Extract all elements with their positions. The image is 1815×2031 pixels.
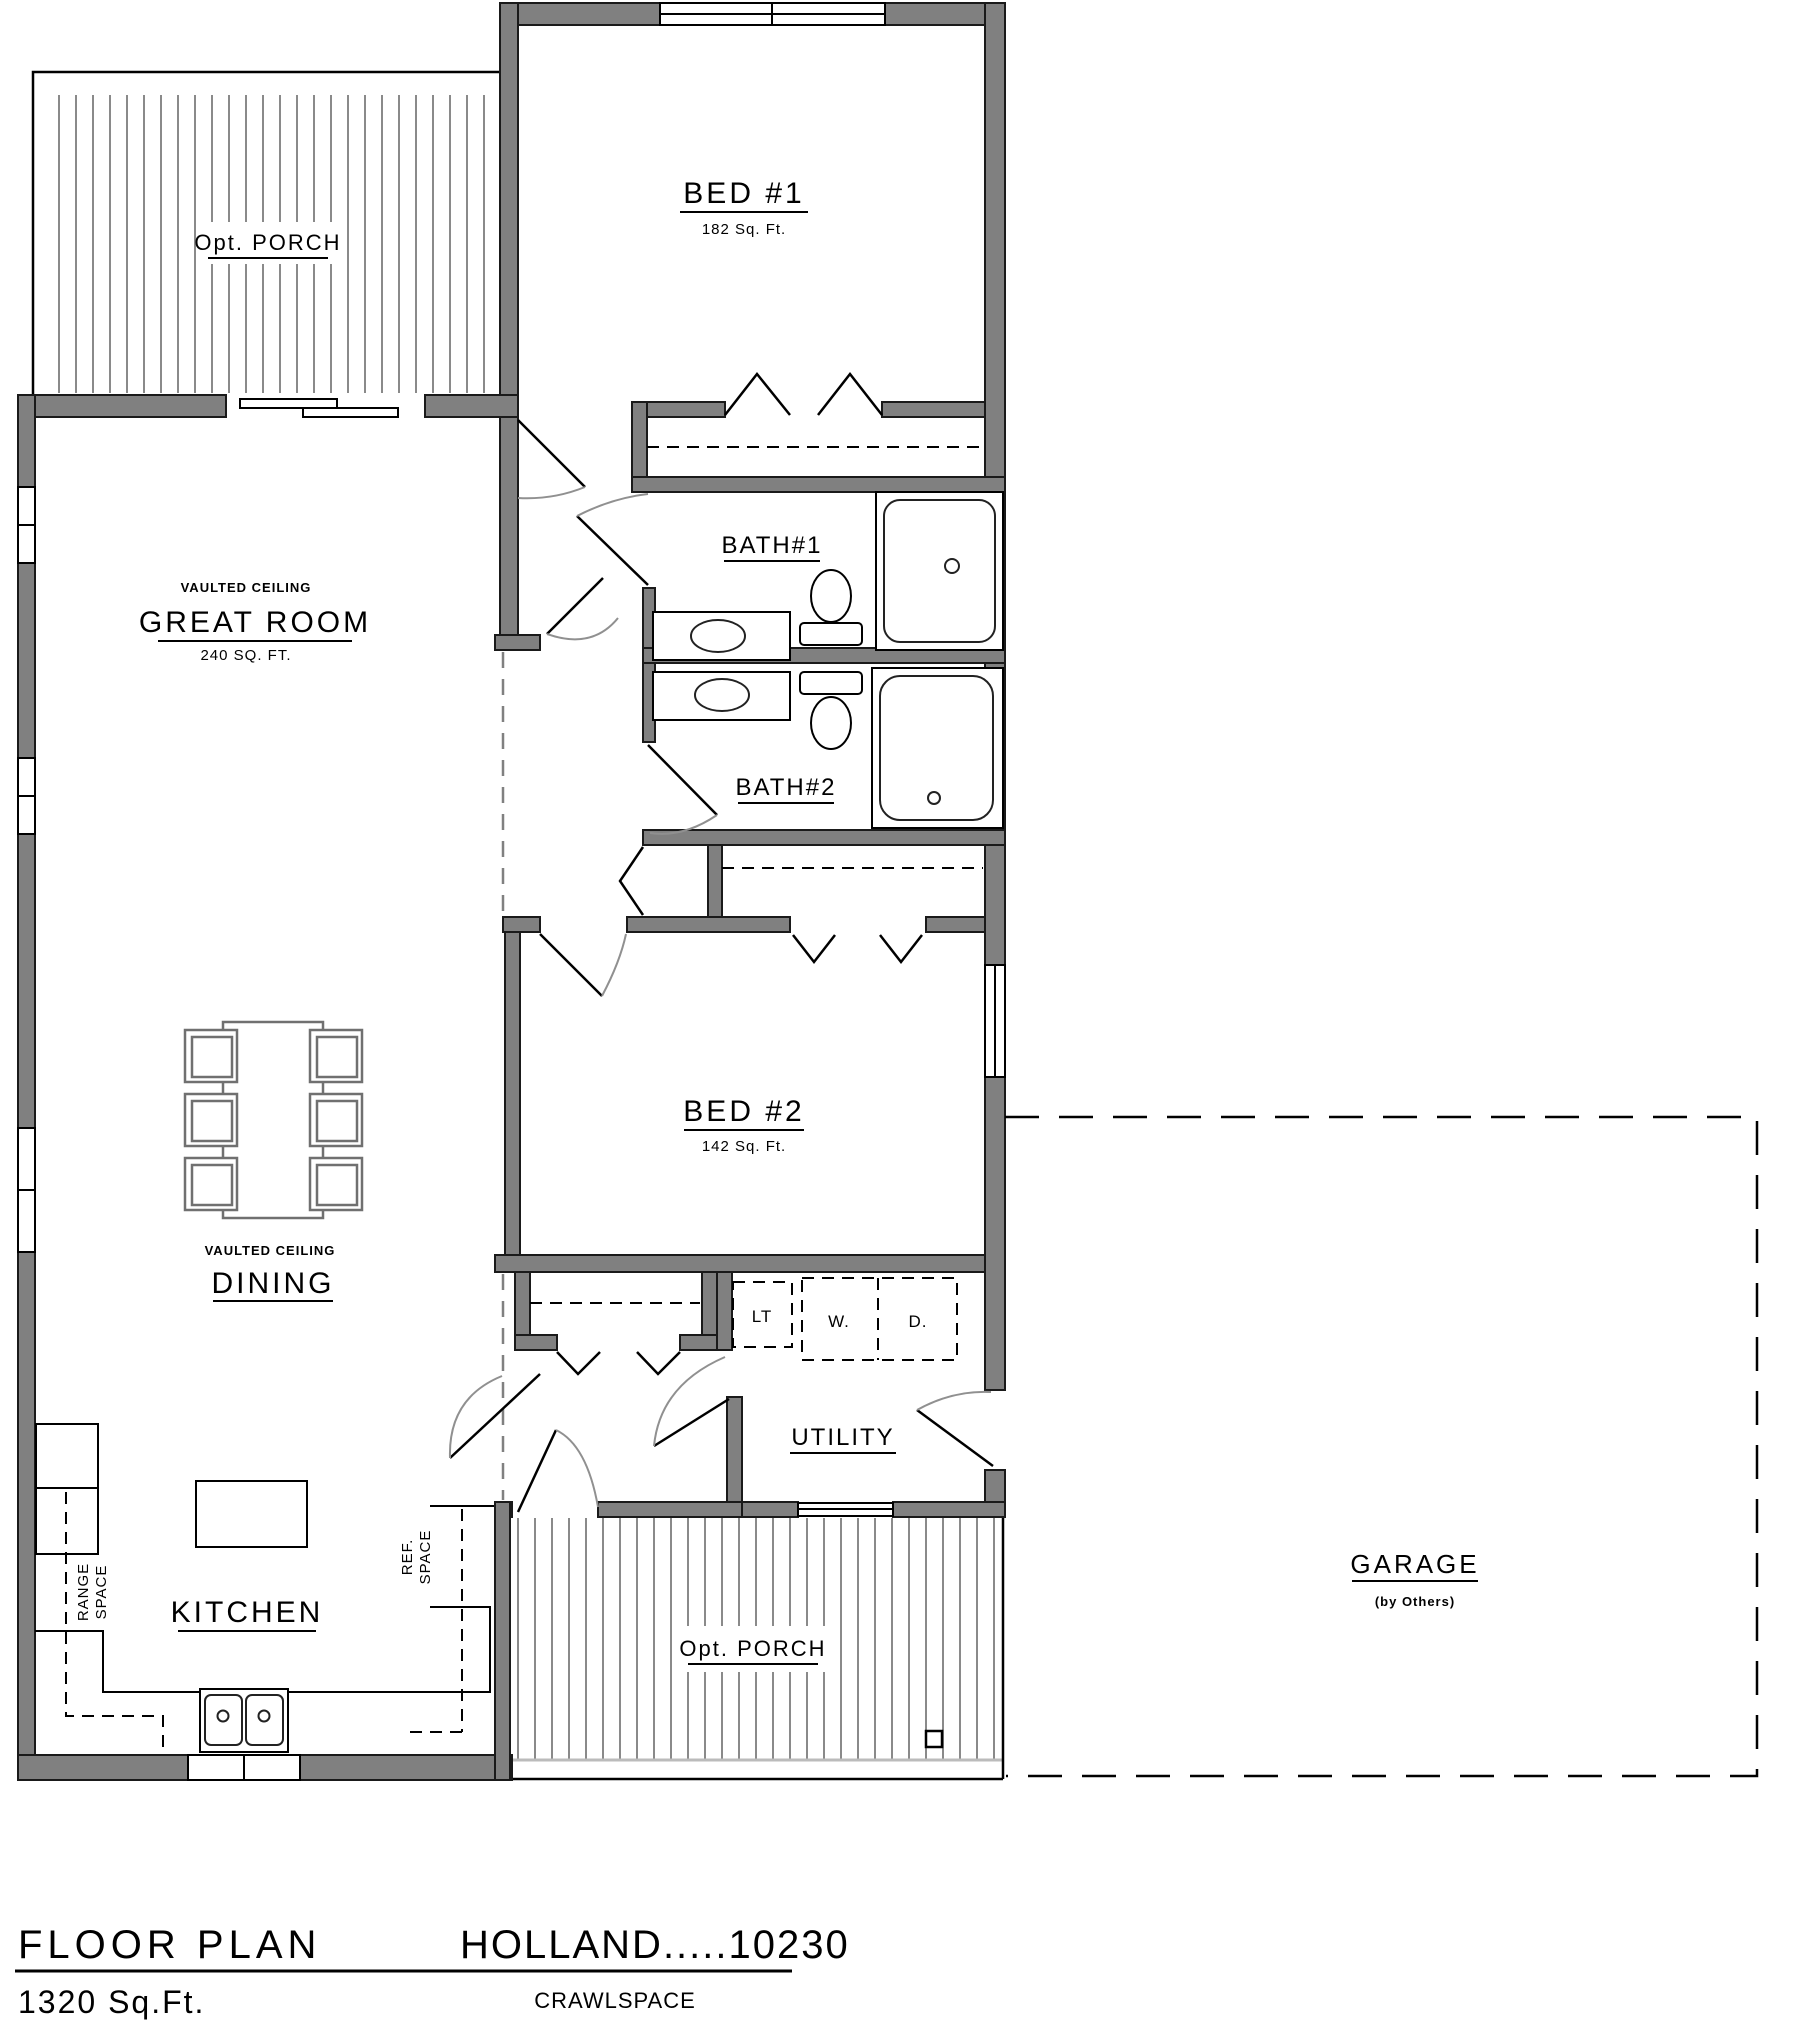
bath2-tub [872, 668, 1003, 828]
pantry-cabinet-1 [36, 1424, 98, 1488]
bed2-closet-bifold [793, 935, 922, 962]
great-room-note: VAULTED CEILING [181, 580, 312, 595]
utility-hall-door [654, 1357, 729, 1446]
dining-note: VAULTED CEILING [205, 1243, 336, 1258]
range-space-label-2: SPACE [93, 1565, 110, 1620]
hall-door [547, 578, 618, 639]
bath1-door [577, 494, 648, 585]
washer-dryer-space [802, 1278, 957, 1360]
porch-sliding-door [240, 399, 398, 417]
great-room-window-2 [18, 758, 35, 834]
ref-space-label-1: REF. [399, 1539, 416, 1576]
kitchen-sink-window [188, 1755, 300, 1780]
garage-label: GARAGE [1350, 1549, 1479, 1579]
bath2-label: BATH#2 [736, 774, 837, 801]
bath1-fixtures [653, 492, 1003, 660]
floor-plan-sheet: Opt. PORCH BED #1 182 Sq. Ft. BATH#1 BAT… [0, 0, 1815, 2031]
washer-label: W. [828, 1312, 850, 1331]
dining-set [185, 1022, 362, 1218]
dining-window [18, 1128, 35, 1252]
bed1-area: 182 Sq. Ft. [702, 221, 786, 238]
bath2-door [648, 745, 717, 834]
bed1-window [660, 3, 885, 25]
dining-label: DINING [212, 1267, 335, 1300]
ref-space-label-2: SPACE [417, 1530, 434, 1585]
bed1-door [518, 420, 585, 498]
utility-window [798, 1503, 893, 1516]
bath1-toilet [800, 570, 862, 645]
linen-closet-door [620, 847, 643, 915]
kitchen-sink [200, 1689, 288, 1752]
bed2-area: 142 Sq. Ft. [702, 1138, 786, 1155]
bath2-toilet [800, 672, 862, 749]
utility-label: UTILITY [791, 1424, 894, 1451]
plan-area: 1320 Sq.Ft. [18, 1984, 205, 2020]
title-block: FLOOR PLAN HOLLAND.....10230 1320 Sq.Ft.… [15, 1923, 850, 2020]
sheet-title: FLOOR PLAN [18, 1923, 321, 1967]
great-room-window-1 [18, 487, 35, 563]
kitchen-label: KITCHEN [171, 1596, 324, 1629]
great-room-area: 240 SQ. FT. [200, 647, 291, 664]
laundry-tub-label: LT [752, 1307, 773, 1326]
kitchen-island [196, 1481, 307, 1547]
utility-garage-door [917, 1392, 993, 1466]
bed1-closet-bifold [725, 374, 882, 415]
counter-left [35, 1631, 200, 1692]
range-space-label-1: RANGE [75, 1563, 92, 1621]
porch-top-label: Opt. PORCH [194, 230, 341, 255]
bed2-window [985, 965, 1005, 1077]
porch-entry-door [518, 1430, 598, 1512]
hall-kitchen-door [450, 1374, 540, 1458]
bath1-shower [876, 492, 1003, 650]
plan-model: HOLLAND.....10230 [460, 1923, 850, 1967]
foundation-type: CRAWLSPACE [534, 1988, 696, 2013]
bed1-label: BED #1 [683, 177, 804, 210]
floor-plan-drawing: Opt. PORCH BED #1 182 Sq. Ft. BATH#1 BAT… [0, 0, 1815, 2031]
bath1-label: BATH#1 [722, 532, 823, 559]
bed2-label: BED #2 [683, 1095, 804, 1128]
dryer-label: D. [909, 1312, 928, 1331]
garage-outline [1005, 1117, 1757, 1776]
porch-bottom-label: Opt. PORCH [679, 1636, 826, 1661]
great-room-label: GREAT ROOM [139, 606, 371, 639]
garage-note: (by Others) [1375, 1594, 1455, 1609]
entry-closet-bifold [557, 1352, 680, 1374]
bed2-door [540, 934, 626, 996]
